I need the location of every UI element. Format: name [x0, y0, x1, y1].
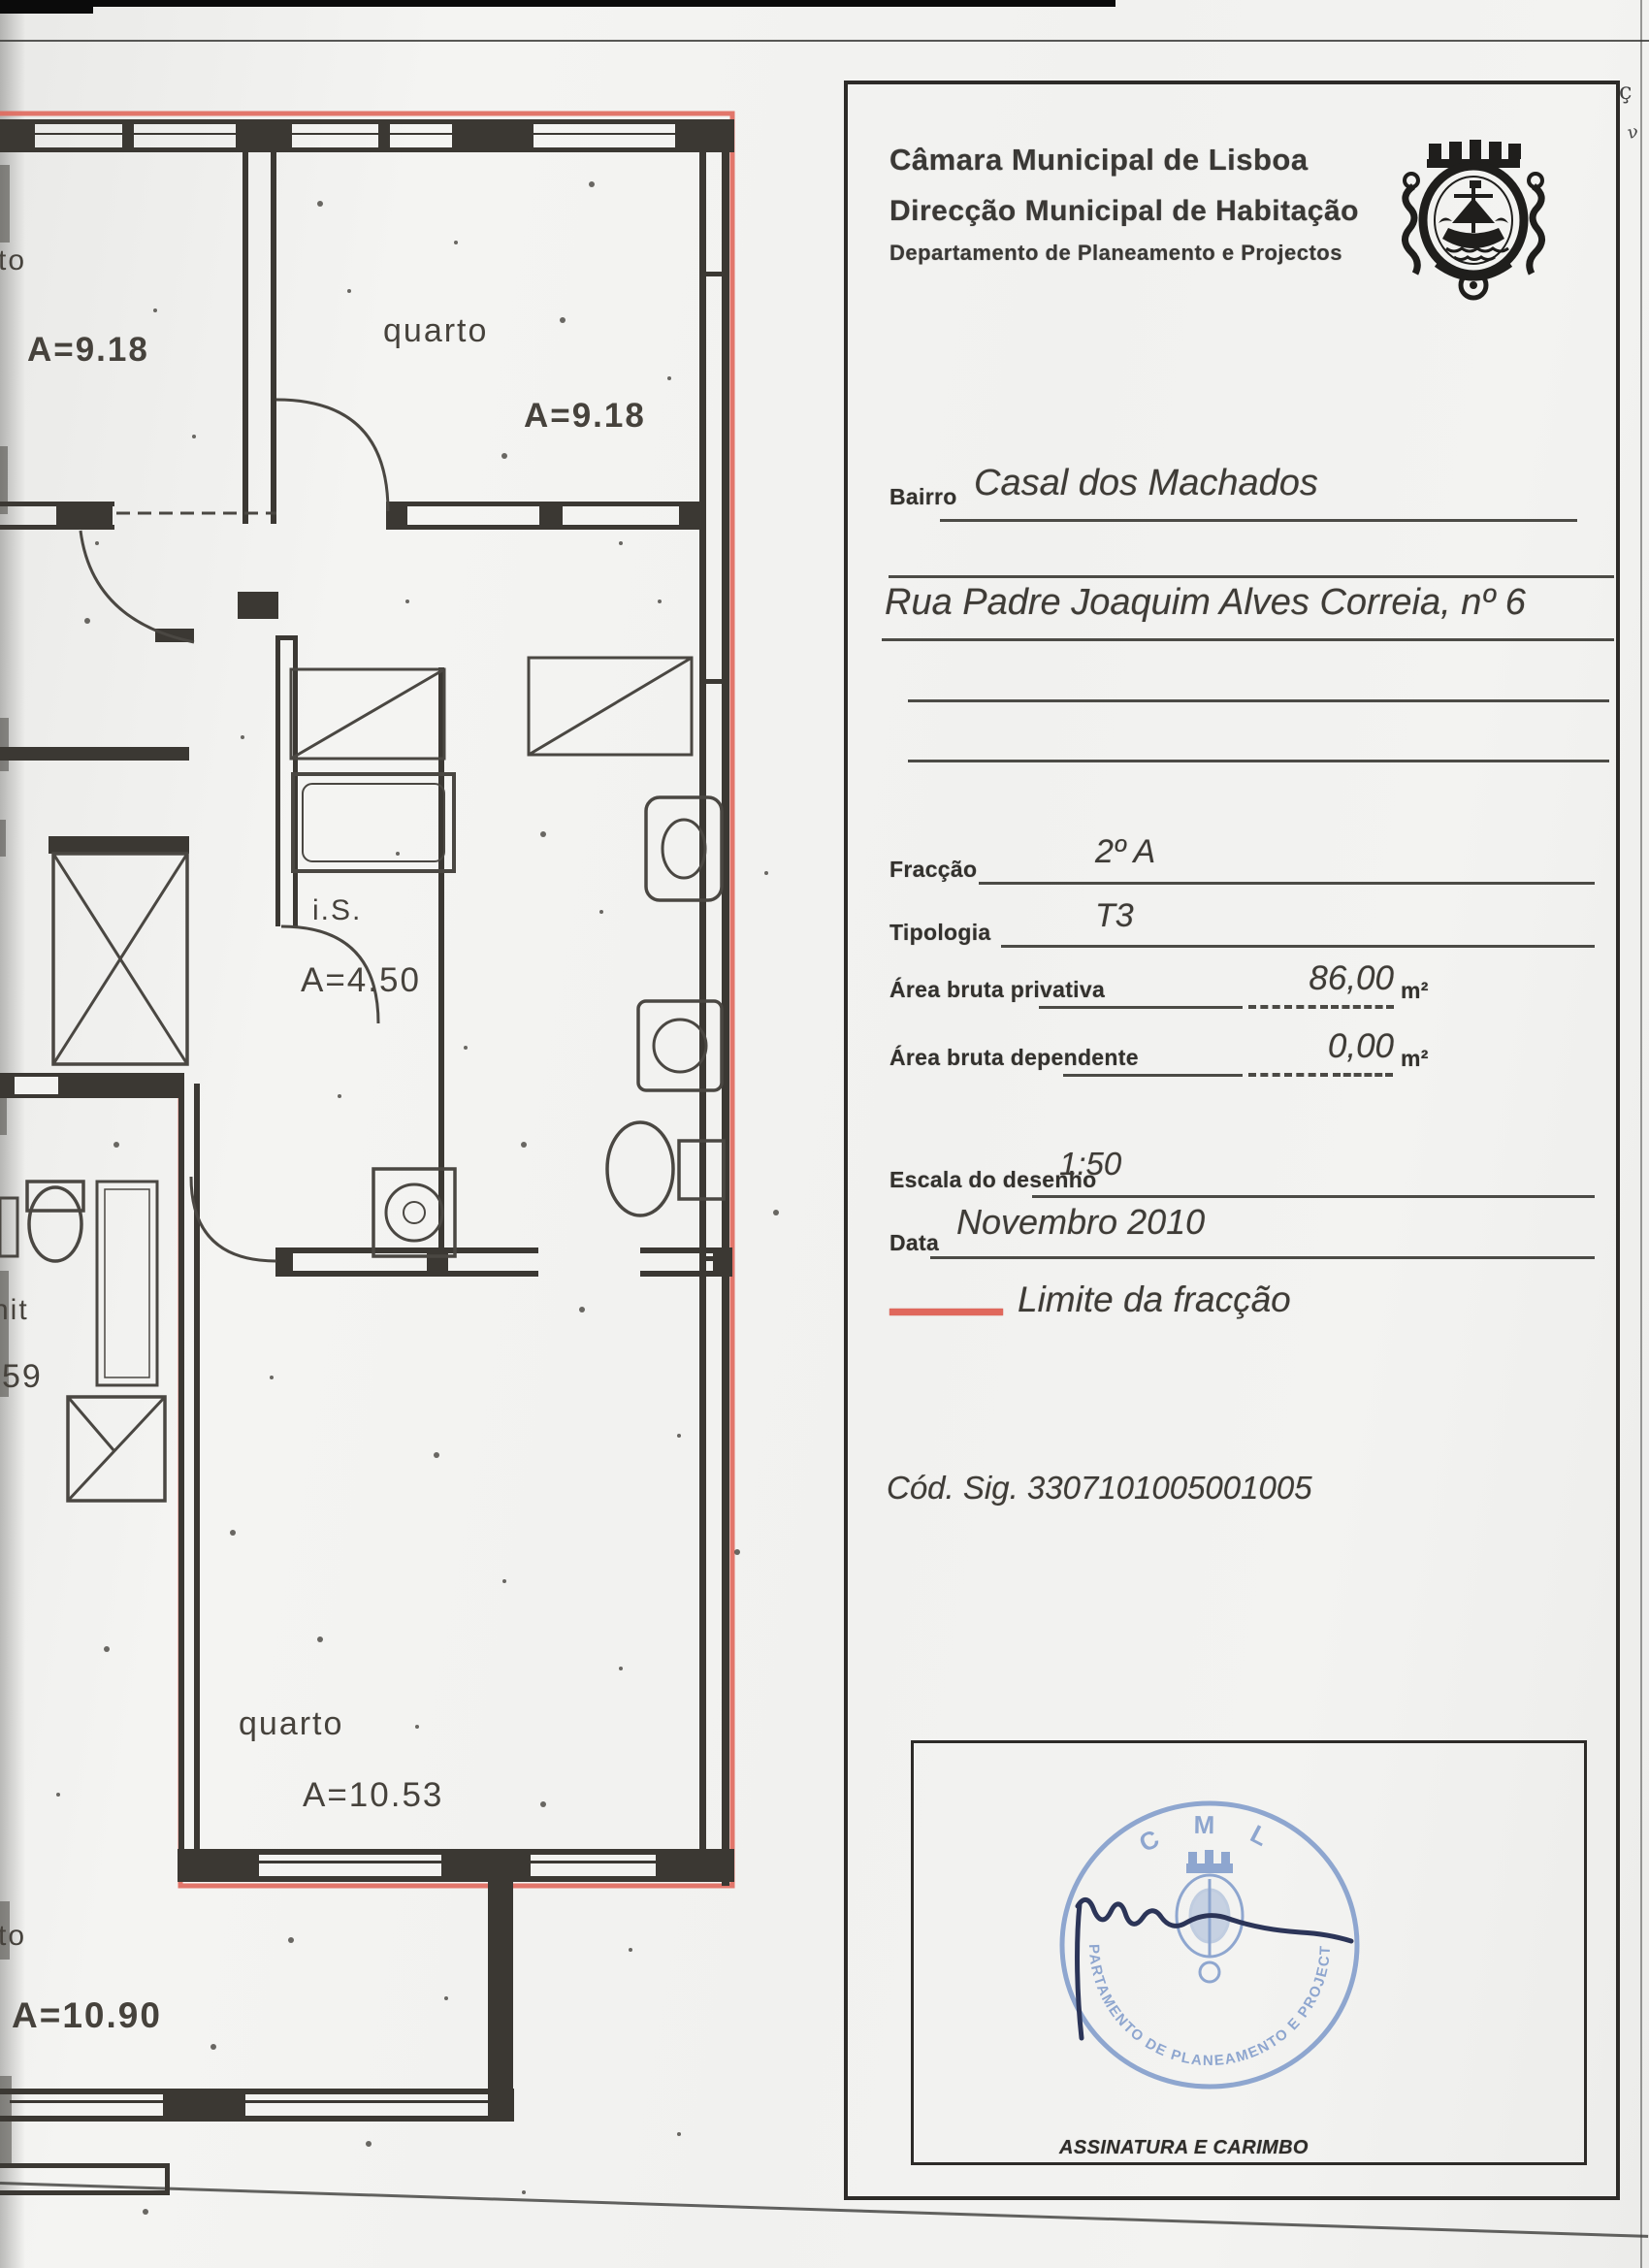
pen-mark-icon: ν	[1626, 121, 1640, 144]
area-dependente-unit: m²	[1401, 1046, 1429, 1072]
room-label: quarto	[239, 1705, 343, 1742]
signature-box: C M L DEPARTAMENTO DE PLANEAMENTO E PROJ…	[911, 1740, 1587, 2165]
wall-window-gap	[15, 1077, 58, 1094]
blank-line	[889, 531, 1614, 578]
fraccao-label: Fracção	[889, 857, 977, 883]
org-department: Departamento de Planeamento e Projectos	[889, 241, 1342, 266]
address-line	[882, 594, 1614, 641]
room-label: nit	[0, 1294, 29, 1326]
room-area: A=10.53	[303, 1776, 443, 1814]
room-area: 59	[2, 1358, 43, 1395]
tipologia-label: Tipologia	[889, 920, 991, 946]
area-privativa-unit: m²	[1401, 978, 1429, 1004]
room-label: rto	[0, 244, 26, 276]
plan-details	[0, 400, 724, 1501]
legend-label: Limite da fracção	[1018, 1280, 1291, 1320]
page-right-edge-line	[1640, 0, 1642, 2268]
door-arc	[81, 531, 194, 642]
area-dependente-value-dash	[1333, 1030, 1393, 1077]
door-arc	[276, 400, 388, 511]
tipologia-line	[1001, 902, 1595, 948]
floor-plan-drawing: rto A=9.18 quarto A=9.18 i.S. A=4.50 qua…	[0, 0, 834, 2268]
scan-smears	[0, 165, 12, 2168]
room-area: A=9.18	[27, 331, 149, 369]
org-title: Câmara Municipal de Lisboa	[889, 143, 1309, 178]
door-arc	[191, 1177, 276, 1261]
area-privativa-line	[1039, 963, 1243, 1009]
area-dependente-line	[1063, 1031, 1243, 1077]
data-line	[930, 1213, 1595, 1259]
signature-caption: ASSINATURA E CARIMBO	[1059, 2137, 1309, 2159]
blank-line	[908, 715, 1609, 762]
room-label: rto	[0, 1920, 26, 1952]
blank-line	[908, 655, 1609, 702]
org-directorate: Direcção Municipal de Habitação	[889, 195, 1359, 228]
cod-sig: Cód. Sig. 3307101005001005	[887, 1470, 1312, 1507]
scanned-floorplan-document: ç ν	[0, 0, 1649, 2268]
room-area: A=10.90	[12, 1995, 162, 2035]
escala-line	[1032, 1151, 1595, 1198]
pen-mark-icon: ç	[1619, 78, 1632, 105]
scan-noise	[56, 181, 779, 2215]
area-privativa-value-dash	[1331, 962, 1394, 1009]
fraccao-line	[979, 839, 1595, 885]
room-area: A=9.18	[524, 397, 646, 435]
info-panel: Câmara Municipal de Lisboa Direcção Muni…	[844, 81, 1620, 2200]
room-area: A=4.50	[301, 961, 421, 999]
lisbon-coat-of-arms-icon	[1376, 125, 1570, 319]
bairro-line	[940, 472, 1577, 522]
room-label: quarto	[383, 312, 488, 349]
fraction-boundary-redline	[0, 113, 732, 1886]
cml-round-stamp: C M L DEPARTAMENTO DE PLANEAMENTO E PROJ…	[1045, 1782, 1374, 2112]
legend-redline	[889, 1309, 1003, 1315]
room-label: i.S.	[312, 894, 362, 926]
